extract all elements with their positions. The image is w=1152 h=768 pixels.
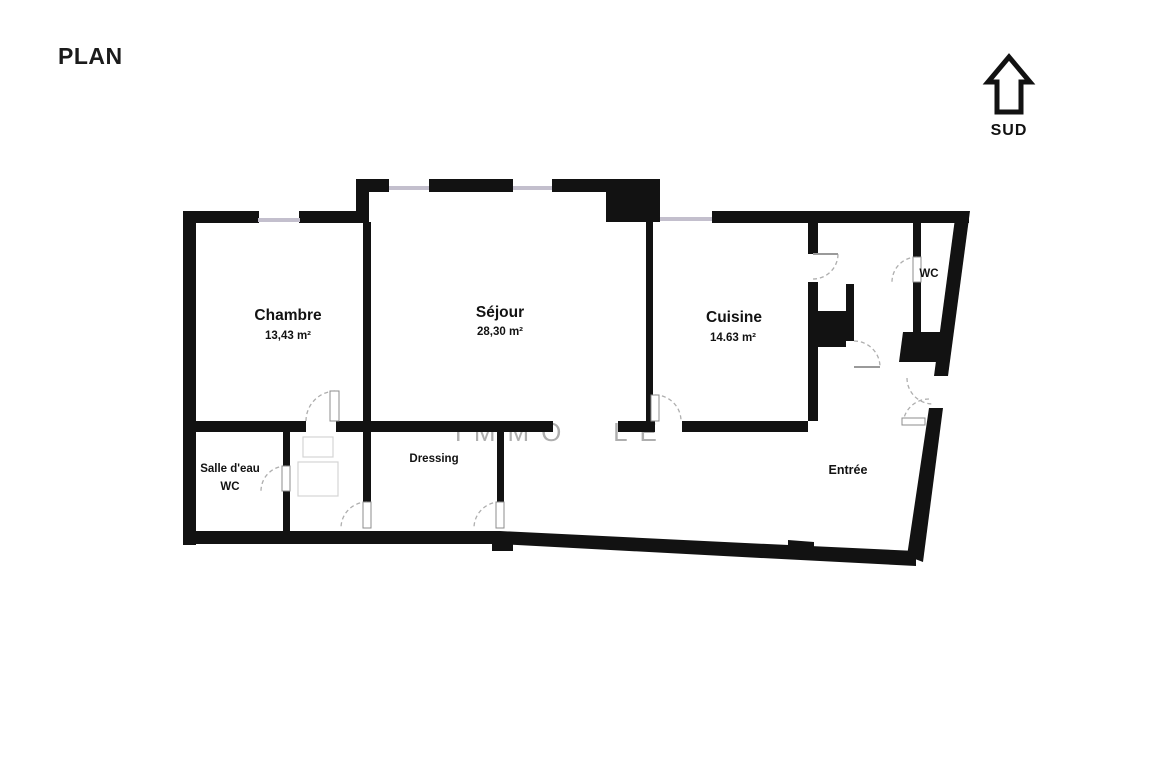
room-label-cuisine: Cuisine	[706, 309, 762, 326]
room-area-cuisine: 14.63 m²	[710, 332, 756, 344]
wall-cuisine-right-a	[808, 223, 818, 254]
door-arc-corridor	[854, 341, 880, 367]
walls	[183, 179, 970, 566]
wall-wc-left-a	[913, 222, 921, 257]
wall-chambre-sejour	[363, 222, 371, 421]
room-label-sejour: Séjour	[476, 304, 524, 321]
room-area-sejour: 28,30 m²	[477, 326, 523, 338]
door-leaf-dressing-left	[363, 502, 371, 528]
door-leaf-cuisine-bottom	[651, 395, 659, 421]
door-arc-cuisine-right	[813, 254, 838, 279]
compass-label: SUD	[991, 122, 1028, 139]
door-leaf-entry	[902, 418, 925, 425]
wall-bottom-notch-1	[492, 544, 513, 551]
window-cuisine	[660, 217, 712, 221]
window-chambre	[258, 218, 300, 222]
wall-sejour-top-b	[429, 179, 513, 192]
door-leaf-dressing-right	[496, 502, 504, 528]
room-label-salle-eau-wc: WC	[220, 481, 239, 493]
wall-wc-left-b	[913, 282, 921, 332]
room-labels: Chambre 13,43 m² Séjour 28,30 m² Cuisine…	[200, 268, 938, 493]
wall-block-top	[606, 179, 660, 222]
compass: SUD	[988, 57, 1030, 139]
wall-dressing-left	[363, 432, 371, 502]
room-label-wc: WC	[919, 268, 938, 280]
wall-dressing-right	[497, 432, 504, 502]
wall-cuisine-top	[712, 211, 969, 223]
wall-wc-block	[899, 332, 946, 362]
wall-sejour-top-a	[356, 179, 389, 192]
sink-fixture	[303, 437, 333, 457]
room-label-entree: Entrée	[829, 463, 868, 477]
wall-interior-c	[618, 421, 655, 432]
wall-interior-d	[682, 421, 808, 432]
window-sejour-1	[389, 186, 429, 190]
shower-fixture	[298, 462, 338, 496]
wall-cuisine-right-b	[808, 282, 818, 421]
wall-salle-eau-right-a	[283, 432, 290, 466]
wall-block-cuisine	[818, 311, 846, 347]
room-label-salle-eau: Salle d'eau	[200, 463, 260, 475]
wall-sejour-top-c	[552, 179, 608, 192]
arrow-up-outline-icon	[988, 57, 1030, 112]
room-area-chambre: 13,43 m²	[265, 330, 311, 342]
wall-left	[183, 211, 196, 545]
floor-plan-drawing: IMMO LE	[0, 0, 1152, 768]
fixtures	[298, 437, 338, 496]
wall-corridor	[846, 284, 854, 341]
window-sejour-2	[513, 186, 552, 190]
wall-bottom-notch-2	[788, 540, 814, 558]
wall-salle-eau-right-b	[283, 491, 290, 532]
wall-right-lower	[907, 408, 943, 562]
wall-chambre-top-left	[183, 211, 259, 223]
wall-interior-b	[336, 421, 553, 432]
door-leaf-salle-eau	[282, 466, 290, 491]
room-label-chambre: Chambre	[254, 307, 322, 324]
room-label-dressing: Dressing	[409, 453, 458, 465]
door-leaf-chambre	[330, 391, 339, 421]
wall-interior-a	[196, 421, 306, 432]
floor-plan-page: PLAN IMMO LE	[0, 0, 1152, 768]
wall-sejour-cuisine	[646, 222, 653, 421]
doors	[261, 254, 933, 528]
wall-chambre-top-right	[299, 211, 365, 223]
